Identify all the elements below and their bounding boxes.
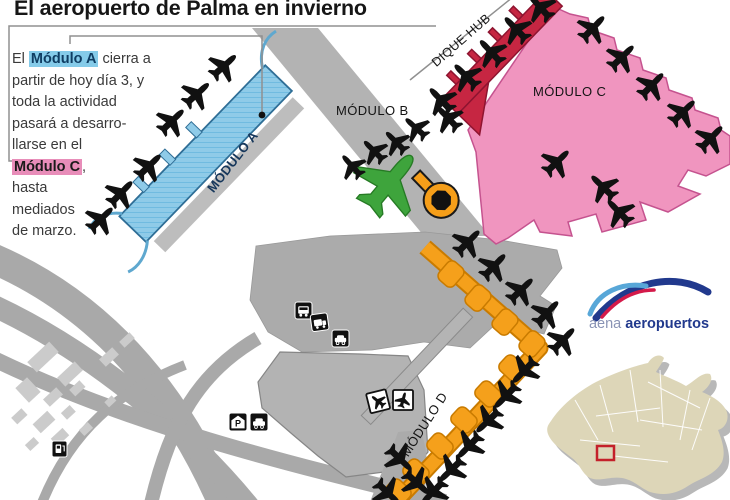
callout-line: mediados <box>12 200 182 222</box>
terminal-plane-badge-icon-2 <box>393 390 413 410</box>
rental-car-icon <box>250 413 268 431</box>
mallorca-map <box>547 356 730 500</box>
callout-line: , <box>82 159 86 175</box>
callout-line: cierra a <box>98 51 150 67</box>
callout-line: de marzo. <box>12 221 182 243</box>
module-c-highlight: Módulo C <box>12 159 82 175</box>
page-title: El aeropuerto de Palma en invierno <box>14 0 367 21</box>
callout-line: toda la actividad <box>12 92 182 114</box>
bus-icon <box>295 302 312 319</box>
callout-dot <box>259 112 266 119</box>
callout-line: partir de hoy día 3, y <box>12 71 182 93</box>
callout-line: hasta <box>12 178 182 200</box>
aena-logo-swoosh <box>590 281 708 318</box>
module-a-highlight: Módulo A <box>29 51 99 67</box>
aena-suffix: aeropuertos <box>625 316 709 332</box>
airplane-icon <box>202 44 246 88</box>
callout-line: llarse en el <box>12 135 182 157</box>
infographic-canvas: P El aeropuerto d <box>0 0 730 500</box>
callout-line: El <box>12 51 29 67</box>
fuel-station-icon <box>52 441 67 457</box>
aena-brand: aena <box>589 316 621 332</box>
car-icon <box>332 330 349 347</box>
svg-text:P: P <box>235 419 241 429</box>
aena-logo-text: aena aeropuertos <box>575 316 723 332</box>
module-b-label: MÓDULO B <box>336 103 409 118</box>
callout-text: El Módulo A cierra a partir de hoy día 3… <box>12 49 182 243</box>
callout-line: pasará a desarro- <box>12 114 182 136</box>
parking-garage-icon: P <box>229 413 247 431</box>
shuttle-bus-icon <box>310 313 329 332</box>
module-c-label: MÓDULO C <box>533 84 606 99</box>
